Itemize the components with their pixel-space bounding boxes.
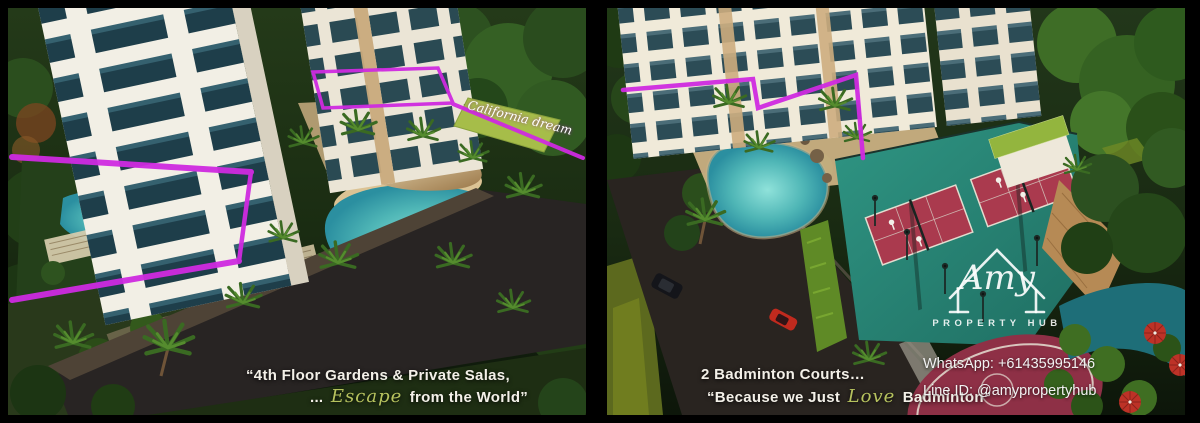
left-caption-ellipsis: ... [310,389,328,406]
umbrella-icon [1144,322,1166,344]
brand-subtitle: PROPERTY HUB [922,318,1072,329]
left-caption-line2: ... Escape from the World” [310,386,528,407]
right-render-panel: Amy PROPERTY HUB 2 Badminton Courts… “Be… [607,8,1185,415]
marketing-collage: California dream “4th Floor Gardens & Pr… [0,0,1200,423]
brand-name-script: Amy [922,260,1072,296]
right-scene-illustration [607,8,1185,415]
contact-info: WhatsApp: +61435995146 Line ID: @amyprop… [923,351,1097,405]
left-caption-suffix: from the World” [405,389,528,406]
right-caption-line1: 2 Badminton Courts… [701,366,865,383]
left-scene-illustration [8,8,586,415]
left-caption-script-word: Escape [328,386,405,407]
left-caption-line1: “4th Floor Gardens & Private Salas, [246,367,510,384]
umbrella-icon [1119,391,1141,413]
right-caption-prefix: “Because we Just [707,389,845,406]
whatsapp-number: WhatsApp: +61435995146 [923,351,1097,378]
left-render-panel: California dream “4th Floor Gardens & Pr… [8,8,586,415]
right-caption-script-word: Love [845,386,899,407]
brand-watermark: Amy PROPERTY HUB [922,236,1072,329]
line-id: Line ID: @amypropertyhub [923,378,1097,405]
